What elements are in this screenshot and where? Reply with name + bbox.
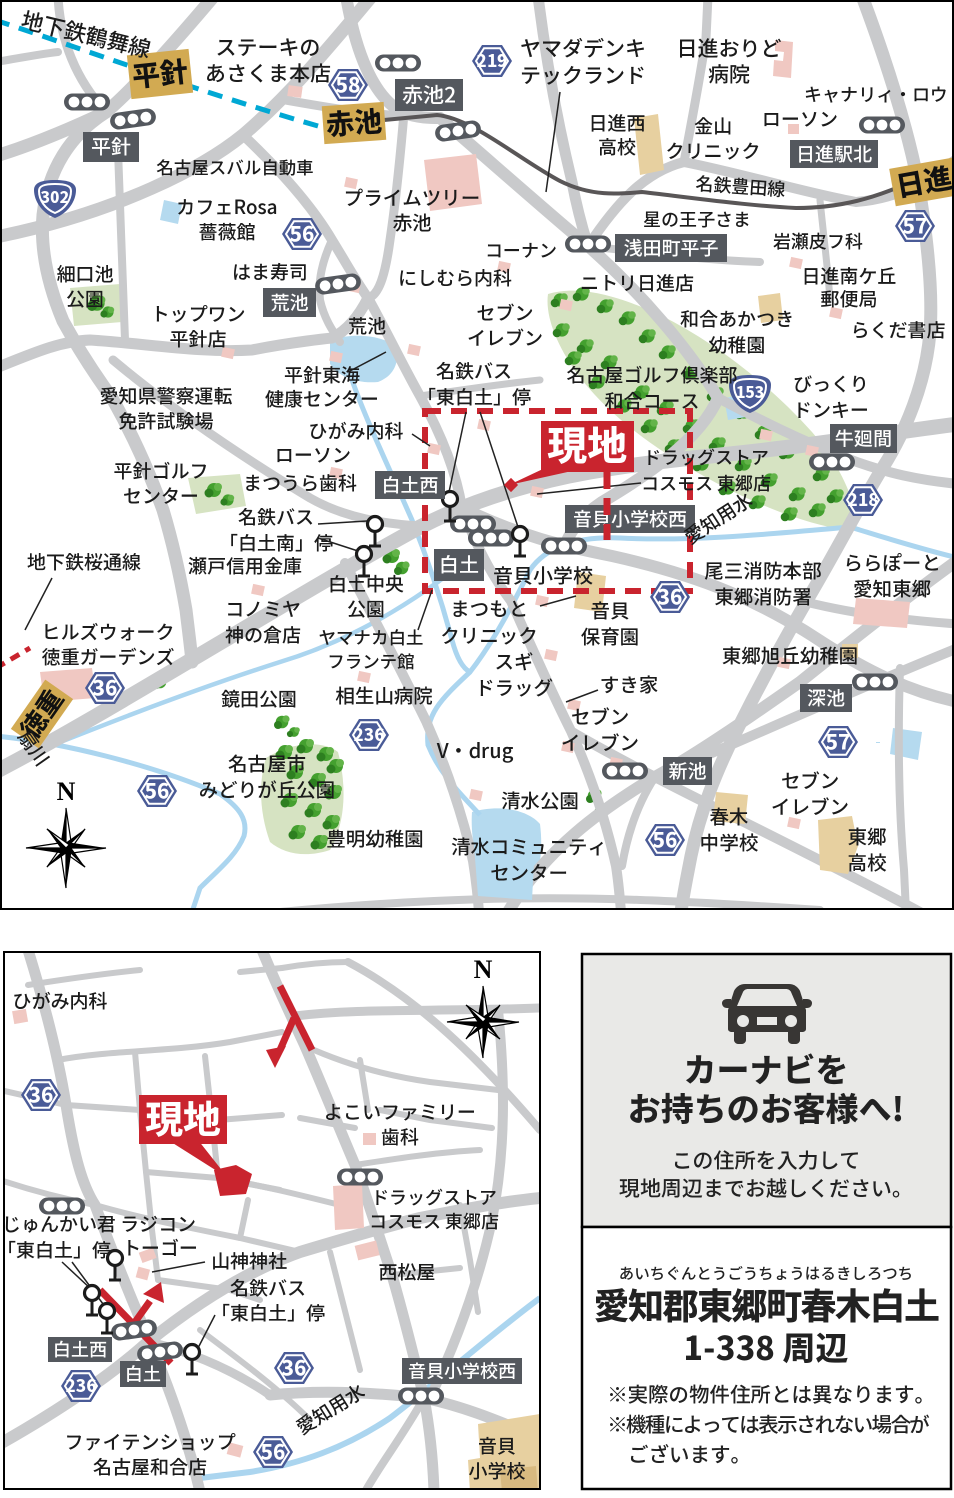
svg-text:トップワン: トップワン xyxy=(150,300,245,327)
svg-text:コスモス 東郷店: コスモス 東郷店 xyxy=(369,1208,499,1234)
svg-text:にしむら内科: にしむら内科 xyxy=(398,264,512,291)
svg-text:みどりが丘公園: みどりが丘公園 xyxy=(199,774,336,803)
svg-text:名古屋スバル自動車: 名古屋スバル自動車 xyxy=(156,155,314,180)
svg-text:春木: 春木 xyxy=(709,801,749,830)
svg-text:クリニック: クリニック xyxy=(665,137,760,164)
svg-text:セブン: セブン xyxy=(476,299,533,326)
svg-text:薔薇館: 薔薇館 xyxy=(198,218,255,245)
svg-text:ドラッグ: ドラッグ xyxy=(475,672,553,701)
svg-text:和合コース: 和合コース xyxy=(604,387,699,414)
svg-text:東郷: 東郷 xyxy=(847,821,887,850)
svg-text:お持ちのお客様へ!: お持ちのお客様へ! xyxy=(628,1083,905,1131)
svg-text:平針東海: 平針東海 xyxy=(284,361,360,388)
svg-text:コスモス 東郷店: コスモス 東郷店 xyxy=(641,470,771,496)
svg-text:コノミヤ: コノミヤ xyxy=(225,595,301,622)
svg-text:イレブン: イレブン xyxy=(771,791,849,820)
svg-text:愛知東郷: 愛知東郷 xyxy=(853,573,932,602)
svg-text:名鉄バス: 名鉄バス xyxy=(238,503,314,530)
svg-text:セブン: セブン xyxy=(781,765,840,794)
svg-text:イレブン: イレブン xyxy=(467,324,543,351)
svg-text:カフェRosa: カフェRosa xyxy=(176,193,277,220)
svg-text:名古屋市: 名古屋市 xyxy=(228,748,306,777)
svg-text:平針ゴルフ: 平針ゴルフ xyxy=(113,457,208,484)
svg-text:名鉄バス: 名鉄バス xyxy=(436,357,512,384)
svg-text:歯科: 歯科 xyxy=(381,1123,419,1150)
svg-text:平針店: 平針店 xyxy=(169,325,226,352)
svg-text:白土西: 白土西 xyxy=(53,1336,107,1362)
svg-text:「東白土」停: 「東白土」停 xyxy=(417,383,531,410)
svg-text:中学校: 中学校 xyxy=(700,827,759,856)
svg-text:現地周辺までお越しください。: 現地周辺までお越しください。 xyxy=(619,1173,913,1203)
svg-text:まつうら歯科: まつうら歯科 xyxy=(243,469,357,496)
svg-text:日進駅北: 日進駅北 xyxy=(796,140,872,167)
svg-text:名古屋和合店: 名古屋和合店 xyxy=(93,1453,207,1480)
svg-text:ニトリ日進店: ニトリ日進店 xyxy=(580,269,694,296)
svg-text:和合あかつき: 和合あかつき xyxy=(680,305,794,332)
svg-text:1-338 周辺: 1-338 周辺 xyxy=(683,1322,848,1370)
svg-text:音貝: 音貝 xyxy=(590,595,629,624)
svg-text:センター: センター xyxy=(123,482,199,509)
svg-text:病院: 病院 xyxy=(708,59,750,89)
svg-text:神の倉店: 神の倉店 xyxy=(224,621,301,648)
svg-text:小学校: 小学校 xyxy=(468,1457,525,1484)
svg-text:細口池: 細口池 xyxy=(56,260,113,287)
svg-text:金山: 金山 xyxy=(694,112,732,139)
svg-text:ございます。: ございます。 xyxy=(628,1438,751,1468)
svg-text:東郷消防署: 東郷消防署 xyxy=(714,581,812,610)
svg-text:東郷旭丘幼稚園: 東郷旭丘幼稚園 xyxy=(722,640,859,669)
svg-text:キャナリィ・ロウ: キャナリィ・ロウ xyxy=(804,81,948,107)
svg-text:公園: 公園 xyxy=(66,285,104,312)
svg-text:ひがみ内科: ひがみ内科 xyxy=(308,417,403,444)
svg-text:ららぽーと: ららぽーと xyxy=(843,547,941,576)
svg-text:ファイテンショップ: ファイテンショップ xyxy=(64,1428,235,1455)
svg-text:ラジコン: ラジコン xyxy=(120,1210,196,1237)
svg-text:※機種によっては表示されない場合が: ※機種によっては表示されない場合が xyxy=(607,1408,930,1438)
svg-text:健康センター: 健康センター xyxy=(265,385,379,412)
svg-text:岩瀬皮フ科: 岩瀬皮フ科 xyxy=(773,228,863,254)
svg-text:コーナン: コーナン xyxy=(485,237,557,263)
svg-text:36: 36 xyxy=(92,673,117,703)
svg-text:保育園: 保育園 xyxy=(581,621,640,650)
svg-text:※実際の物件住所とは異なります。: ※実際の物件住所とは異なります。 xyxy=(607,1378,935,1408)
svg-text:名鉄バス: 名鉄バス xyxy=(230,1274,306,1301)
svg-text:現地: 現地 xyxy=(145,1089,221,1144)
svg-text:58: 58 xyxy=(335,70,360,100)
svg-text:荒池: 荒池 xyxy=(270,288,308,315)
svg-text:トーゴー: トーゴー xyxy=(122,1234,198,1261)
svg-text:フランテ館: フランテ館 xyxy=(327,649,415,674)
svg-text:深池: 深池 xyxy=(807,684,845,711)
svg-text:びっくり: びっくり xyxy=(793,370,869,397)
svg-text:赤池: 赤池 xyxy=(392,207,431,236)
svg-text:236: 236 xyxy=(354,721,385,746)
svg-text:ヒルズウォーク: ヒルズウォーク xyxy=(41,618,174,645)
svg-text:音貝小学校西: 音貝小学校西 xyxy=(408,1357,516,1383)
svg-text:まつもと: まつもと xyxy=(450,593,528,622)
svg-text:236: 236 xyxy=(66,1372,97,1397)
svg-text:尾三消防本部: 尾三消防本部 xyxy=(703,555,822,584)
svg-text:36: 36 xyxy=(281,1353,306,1383)
svg-text:56: 56 xyxy=(260,1437,285,1467)
svg-text:56: 56 xyxy=(289,219,314,249)
svg-text:56: 56 xyxy=(144,776,169,806)
svg-text:V・drug: V・drug xyxy=(436,735,514,764)
svg-text:赤池2: 赤池2 xyxy=(402,80,456,110)
svg-text:N: N xyxy=(474,955,493,984)
svg-text:イレブン: イレブン xyxy=(561,727,639,756)
svg-text:センター: センター xyxy=(490,857,568,886)
svg-text:36: 36 xyxy=(657,582,682,612)
svg-text:57: 57 xyxy=(825,727,850,757)
svg-text:幼稚園: 幼稚園 xyxy=(708,331,765,358)
svg-text:クリニック: クリニック xyxy=(440,620,538,649)
svg-text:荒池: 荒池 xyxy=(348,312,386,339)
svg-text:高校: 高校 xyxy=(847,847,887,876)
svg-text:セブン: セブン xyxy=(571,701,630,730)
svg-text:西松屋: 西松屋 xyxy=(378,1258,435,1285)
svg-text:ドラッグストア: ドラッグストア xyxy=(371,1184,497,1210)
svg-text:ヤマダデンキ: ヤマダデンキ xyxy=(520,33,646,63)
svg-text:名古屋ゴルフ倶楽部: 名古屋ゴルフ倶楽部 xyxy=(566,361,737,388)
svg-text:56: 56 xyxy=(652,825,677,855)
svg-text:現地: 現地 xyxy=(547,414,627,472)
svg-text:ローソン: ローソン xyxy=(762,105,838,132)
svg-text:清水公園: 清水公園 xyxy=(501,785,579,814)
svg-text:白土: 白土 xyxy=(439,549,479,578)
svg-text:スギ: スギ xyxy=(494,646,533,675)
svg-text:白土: 白土 xyxy=(125,1360,161,1386)
svg-text:鏡田公園: 鏡田公園 xyxy=(221,685,297,712)
svg-text:ドンキー: ドンキー xyxy=(793,396,869,423)
svg-text:清水コミュニティ: 清水コミュニティ xyxy=(451,831,607,860)
svg-text:あさくま本店: あさくま本店 xyxy=(205,58,331,88)
svg-text:浅田町平子: 浅田町平子 xyxy=(623,234,718,261)
svg-text:白土西: 白土西 xyxy=(381,471,438,498)
svg-text:音貝小学校西: 音貝小学校西 xyxy=(573,505,687,532)
svg-text:公園: 公園 xyxy=(347,595,385,622)
svg-text:音貝小学校: 音貝小学校 xyxy=(493,560,593,589)
svg-text:よこいファミリー: よこいファミリー xyxy=(324,1098,476,1125)
svg-text:302: 302 xyxy=(41,184,70,208)
svg-text:すき家: すき家 xyxy=(600,669,659,698)
svg-text:音貝: 音貝 xyxy=(478,1432,516,1459)
svg-text:じゅんかい君: じゅんかい君 xyxy=(2,1210,116,1237)
svg-text:「東白土」停: 「東白土」停 xyxy=(0,1236,111,1263)
svg-text:瀬戸信用金庫: 瀬戸信用金庫 xyxy=(188,552,302,579)
svg-text:ひがみ内科: ひがみ内科 xyxy=(12,987,107,1014)
svg-text:ローソン: ローソン xyxy=(275,441,351,468)
svg-text:赤池: 赤池 xyxy=(325,100,384,144)
svg-text:高校: 高校 xyxy=(598,133,636,160)
svg-text:N: N xyxy=(57,777,76,806)
svg-text:山神神社: 山神神社 xyxy=(211,1247,287,1274)
svg-text:57: 57 xyxy=(902,211,927,241)
svg-text:日進西: 日進西 xyxy=(588,109,645,136)
svg-text:らくだ書店: らくだ書店 xyxy=(850,316,945,343)
svg-text:愛知県警察運転: 愛知県警察運転 xyxy=(99,382,232,409)
svg-text:星の王子さま: 星の王子さま xyxy=(643,206,751,232)
svg-text:豊明幼稚園: 豊明幼稚園 xyxy=(326,823,424,852)
svg-text:牛廻間: 牛廻間 xyxy=(835,424,892,451)
svg-text:徳重ガーデンズ: 徳重ガーデンズ xyxy=(41,643,174,670)
svg-text:テックランド: テックランド xyxy=(520,60,646,90)
svg-text:新池: 新池 xyxy=(668,757,706,784)
svg-text:ドラッグストア: ドラッグストア xyxy=(643,444,769,470)
svg-text:36: 36 xyxy=(28,1080,53,1110)
svg-text:218: 218 xyxy=(848,486,879,511)
svg-text:平針: 平針 xyxy=(91,131,131,160)
svg-text:この住所を入力して: この住所を入力して xyxy=(672,1145,861,1175)
svg-text:白土中央: 白土中央 xyxy=(328,570,404,597)
svg-text:地下鉄桜通線: 地下鉄桜通線 xyxy=(27,548,141,575)
svg-text:219: 219 xyxy=(477,47,508,72)
svg-text:相生山病院: 相生山病院 xyxy=(335,680,433,709)
svg-text:郵便局: 郵便局 xyxy=(820,285,877,312)
svg-text:はま寿司: はま寿司 xyxy=(232,258,308,285)
svg-text:ヤマナカ白土: ヤマナカ白土 xyxy=(319,625,424,650)
svg-text:「東白土」停: 「東白土」停 xyxy=(211,1299,325,1326)
svg-text:153: 153 xyxy=(736,379,765,403)
svg-text:免許試験場: 免許試験場 xyxy=(118,407,213,434)
